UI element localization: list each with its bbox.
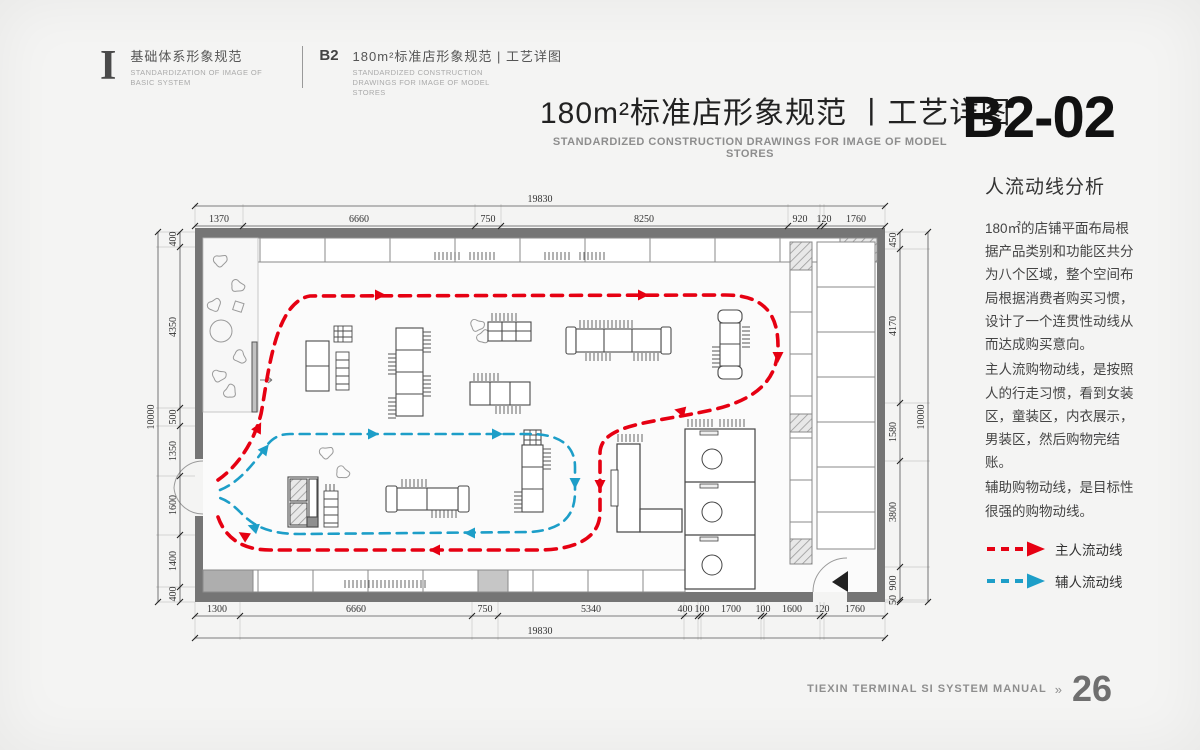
svg-text:1300: 1300 — [207, 604, 227, 615]
svg-text:5340: 5340 — [581, 604, 601, 615]
flow-legend: 主人流动线 辅人流动线 — [985, 539, 1137, 591]
svg-text:1700: 1700 — [721, 604, 741, 615]
legend-main-flow-label: 主人流动线 — [1055, 539, 1123, 559]
svg-text:1580: 1580 — [888, 422, 899, 442]
svg-text:400: 400 — [168, 587, 179, 602]
bottom-wall-shelving — [203, 570, 685, 592]
title-block: 180m²标准店形象规范 丨工艺详图 STANDARDIZED CONSTRUC… — [540, 88, 960, 160]
svg-text:400: 400 — [678, 604, 693, 615]
section-subtitle-en: STANDARDIZED CONSTRUCTION DRAWINGS FOR I… — [353, 68, 503, 98]
sidebar-paragraph: 180㎡的店铺平面布局根据产品类别和功能区共分为八个区域，整个空间布局根据消费者… — [985, 217, 1137, 356]
svg-text:19830: 19830 — [528, 626, 553, 637]
svg-text:6660: 6660 — [346, 604, 366, 615]
svg-text:8250: 8250 — [634, 214, 654, 225]
svg-text:10000: 10000 — [916, 405, 927, 430]
fitting-room-rail — [720, 419, 744, 427]
series-subtitle-en: STANDARDIZATION OF IMAGE OF BASIC SYSTEM — [130, 68, 280, 88]
sidebar-heading: 人流动线分析 — [985, 172, 1137, 199]
svg-text:1760: 1760 — [846, 214, 866, 225]
header-divider — [302, 46, 303, 88]
svg-text:900: 900 — [888, 576, 899, 591]
svg-text:100: 100 — [695, 604, 710, 615]
svg-text:50: 50 — [888, 595, 899, 605]
legend-main-flow: 主人流动线 — [985, 539, 1137, 559]
hang-rack — [336, 352, 349, 390]
svg-text:100: 100 — [756, 604, 771, 615]
svg-text:1600: 1600 — [168, 495, 179, 515]
floor-plan: 19830 1370 6660 750 8250 920 120 1760 13… — [140, 182, 940, 659]
svg-text:4350: 4350 — [168, 317, 179, 337]
svg-text:750: 750 — [481, 214, 496, 225]
top-wall-shelving — [203, 238, 877, 262]
svg-text:1370: 1370 — [209, 214, 229, 225]
page-number: 26 — [1072, 668, 1112, 710]
page-title: 180m²标准店形象规范 丨工艺详图 — [540, 88, 960, 132]
series-title-group: 基础体系形象规范 STANDARDIZATION OF IMAGE OF BAS… — [130, 46, 280, 88]
svg-text:120: 120 — [817, 214, 832, 225]
svg-text:1400: 1400 — [168, 551, 179, 571]
svg-text:400: 400 — [168, 232, 179, 247]
svg-text:10000: 10000 — [146, 405, 157, 430]
page-subtitle-en: STANDARDIZED CONSTRUCTION DRAWINGS FOR I… — [540, 136, 960, 160]
svg-text:1760: 1760 — [845, 604, 865, 615]
sidebar-paragraph: 辅助购物动线，是目标性很强的购物动线。 — [985, 476, 1137, 522]
legend-aux-flow-label: 辅人流动线 — [1055, 571, 1123, 591]
svg-text:120: 120 — [815, 604, 830, 615]
nesting-table — [334, 326, 352, 342]
footer-separator-icon: » — [1055, 682, 1062, 697]
fitting-rooms — [685, 429, 755, 589]
sidebar-paragraph: 主人流购物动线，是按照人的行走习惯，看到女装区，童装区，内衣展示，男装区，然后购… — [985, 358, 1137, 474]
main-flow-arrow-icon — [985, 540, 1047, 558]
promo-table — [288, 477, 318, 527]
analysis-sidebar: 人流动线分析 180㎡的店铺平面布局根据产品类别和功能区共分为八个区域，整个空间… — [985, 172, 1137, 591]
display-table — [306, 341, 329, 391]
section-title-group: 180m²标准店形象规范 | 工艺详图 STANDARDIZED CONSTRU… — [353, 46, 562, 98]
svg-text:1350: 1350 — [168, 441, 179, 461]
right-wall-shelving — [790, 242, 875, 564]
store-floor — [203, 238, 877, 592]
section-title: 180m²标准店形象规范 | 工艺详图 — [353, 46, 562, 65]
page-footer: TIEXIN TERMINAL SI SYSTEM MANUAL » 26 — [807, 668, 1112, 710]
svg-text:3800: 3800 — [888, 502, 899, 522]
series-title: 基础体系形象规范 — [130, 46, 280, 65]
aux-flow-arrow-icon — [985, 572, 1047, 590]
section-code: B2 — [319, 47, 338, 64]
svg-text:1600: 1600 — [782, 604, 802, 615]
svg-text:750: 750 — [478, 604, 493, 615]
manual-page: I 基础体系形象规范 STANDARDIZATION OF IMAGE OF B… — [0, 0, 1200, 750]
series-logo: I — [100, 46, 116, 86]
svg-text:500: 500 — [168, 410, 179, 425]
bottom-shelving-racks — [345, 580, 425, 588]
page-code: B2-02 — [962, 84, 1122, 151]
page-header: I 基础体系形象规范 STANDARDIZATION OF IMAGE OF B… — [100, 46, 578, 98]
svg-text:450: 450 — [888, 233, 899, 248]
svg-text:19830: 19830 — [528, 194, 553, 205]
manual-title: TIEXIN TERMINAL SI SYSTEM MANUAL — [807, 683, 1047, 695]
svg-text:4170: 4170 — [888, 316, 899, 336]
svg-text:920: 920 — [793, 214, 808, 225]
svg-text:6660: 6660 — [349, 214, 369, 225]
fitting-room-rail — [688, 419, 712, 427]
legend-aux-flow: 辅人流动线 — [985, 571, 1137, 591]
cashier-rail — [618, 434, 642, 442]
